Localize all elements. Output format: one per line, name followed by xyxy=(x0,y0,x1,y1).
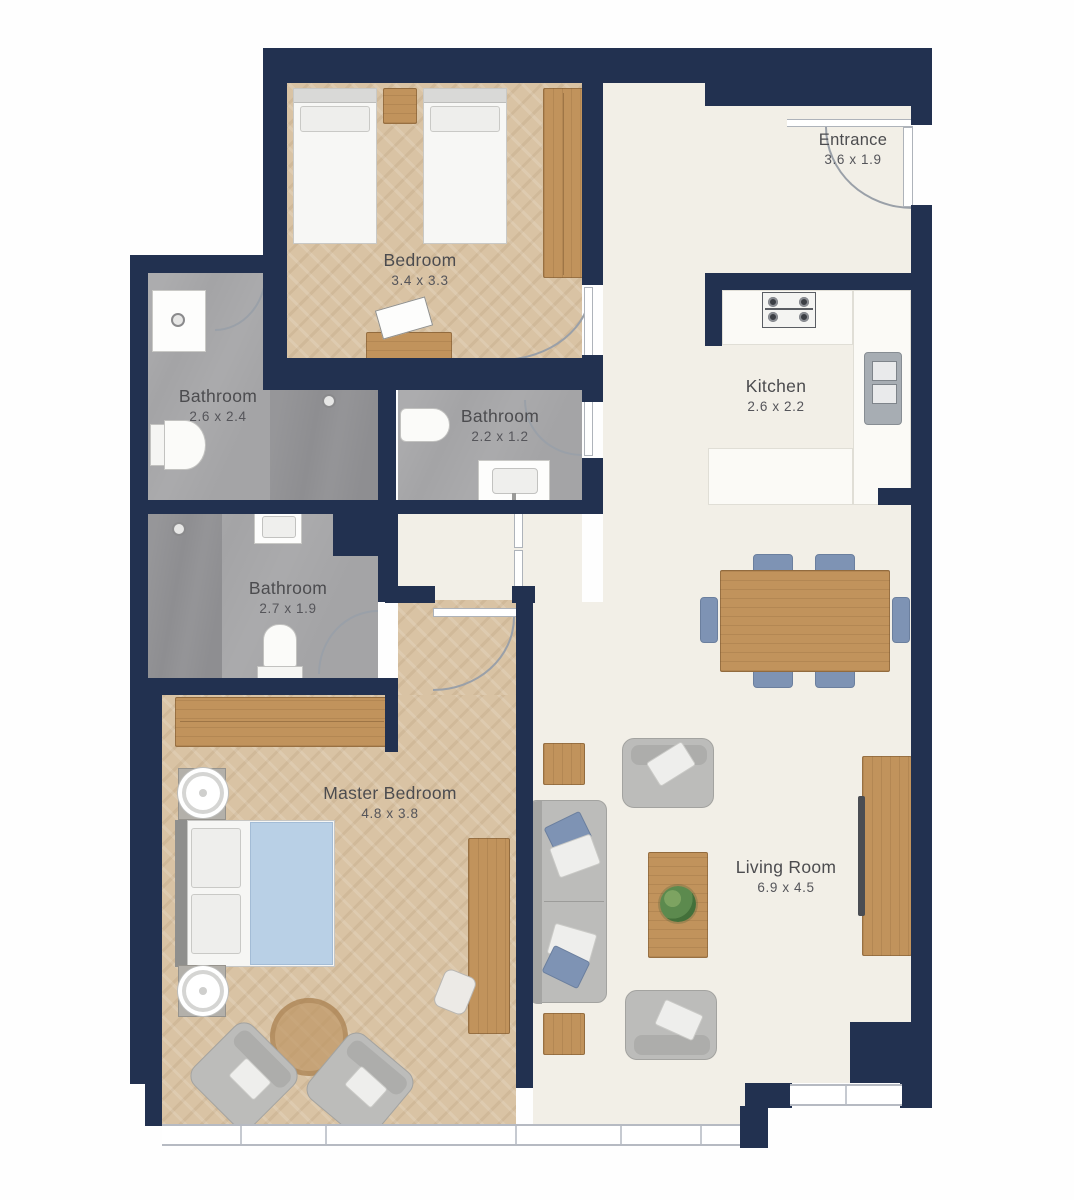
window xyxy=(790,1084,902,1106)
wall xyxy=(740,1106,768,1148)
window-mullion xyxy=(845,1086,847,1104)
room-name: Bathroom xyxy=(198,578,378,600)
basin xyxy=(262,516,296,538)
window-mullion xyxy=(700,1126,702,1144)
room-label-kitchen: Kitchen 2.6 x 2.2 xyxy=(686,376,866,416)
wall xyxy=(263,48,287,378)
bed-pillow xyxy=(191,828,241,888)
wall xyxy=(911,205,932,1022)
room-label-master-bedroom: Master Bedroom 4.8 x 3.8 xyxy=(270,783,510,823)
wall xyxy=(130,678,398,695)
toilet xyxy=(257,624,301,678)
cooktop xyxy=(762,292,816,328)
wall xyxy=(130,500,603,514)
burner-icon xyxy=(799,312,809,322)
headboard xyxy=(424,89,506,103)
fridge-door xyxy=(872,384,897,404)
tv-cabinet xyxy=(862,756,912,956)
room-name: Bathroom xyxy=(128,386,308,408)
wall xyxy=(263,358,603,390)
shower-tray xyxy=(152,290,206,352)
room-dimensions: 4.8 x 3.8 xyxy=(270,806,510,823)
wall xyxy=(130,255,148,692)
room-dimensions: 2.6 x 2.4 xyxy=(128,409,308,426)
wall xyxy=(385,586,435,603)
tv-icon xyxy=(858,796,865,916)
wall xyxy=(850,1022,932,1083)
window-mullion xyxy=(240,1126,242,1144)
floor-drain-icon xyxy=(322,394,336,408)
side-table xyxy=(543,743,585,785)
basin xyxy=(492,468,538,494)
bed-blanket xyxy=(250,822,333,965)
wall xyxy=(878,488,911,505)
room-label-bathroom-1: Bathroom 2.6 x 2.4 xyxy=(128,386,308,426)
door-leaf xyxy=(433,608,517,617)
room-label-bathroom-2: Bathroom 2.2 x 1.2 xyxy=(410,406,590,446)
wall xyxy=(516,600,533,1088)
living-area-floor xyxy=(533,1106,740,1124)
wardrobe xyxy=(543,88,585,278)
single-bed xyxy=(293,88,377,244)
double-door-leaf xyxy=(514,550,523,590)
entrance-threshold xyxy=(787,119,913,127)
wall xyxy=(900,1082,932,1108)
door-leaf xyxy=(584,287,593,359)
room-name: Living Room xyxy=(676,857,896,879)
wall xyxy=(130,692,162,1084)
window-mullion xyxy=(325,1126,327,1144)
room-name: Kitchen xyxy=(686,376,866,398)
room-dimensions: 3.4 x 3.3 xyxy=(320,273,520,290)
wall xyxy=(705,273,911,290)
toilet xyxy=(150,420,204,468)
wall xyxy=(705,273,722,346)
lamp-icon xyxy=(186,776,220,810)
kitchen-counter xyxy=(708,448,853,505)
wardrobe-divider xyxy=(180,721,384,722)
dining-chair xyxy=(892,597,910,643)
wall xyxy=(582,458,603,514)
window xyxy=(162,1124,740,1146)
wardrobe-divider xyxy=(563,93,564,275)
fridge-door xyxy=(872,361,897,381)
wall xyxy=(705,48,932,106)
room-label-living-room: Living Room 6.9 x 4.5 xyxy=(676,857,896,897)
headboard xyxy=(294,89,376,103)
sofa-seat-line xyxy=(544,901,604,902)
bed-pillow xyxy=(430,106,500,132)
room-label-entrance: Entrance 3.6 x 1.9 xyxy=(778,130,928,169)
room-label-bedroom: Bedroom 3.4 x 3.3 xyxy=(320,250,520,290)
room-label-bathroom-3: Bathroom 2.7 x 1.9 xyxy=(198,578,378,618)
fridge xyxy=(864,352,902,425)
dining-table xyxy=(720,570,890,672)
floor-plan: Bedroom 3.4 x 3.3 Bathroom 2.6 x 2.4 Bat… xyxy=(0,0,1074,1200)
burner-icon xyxy=(768,297,778,307)
lamp-icon xyxy=(186,974,220,1008)
toilet-bowl xyxy=(164,420,206,470)
bed-pillow xyxy=(191,894,241,954)
double-door-leaf xyxy=(514,508,523,548)
room-name: Bedroom xyxy=(320,250,520,272)
wall xyxy=(911,48,932,125)
room-dimensions: 2.7 x 1.9 xyxy=(198,601,378,618)
wall xyxy=(378,390,396,500)
desk xyxy=(468,838,510,1034)
room-dimensions: 2.6 x 2.2 xyxy=(686,399,866,416)
shower-drain-icon xyxy=(171,313,185,327)
bed-pillow xyxy=(300,106,370,132)
burner-icon xyxy=(799,297,809,307)
room-name: Master Bedroom xyxy=(270,783,510,805)
headboard xyxy=(175,820,187,967)
window-mullion xyxy=(620,1126,622,1144)
single-bed xyxy=(423,88,507,244)
burner-icon xyxy=(768,312,778,322)
wall xyxy=(385,678,398,752)
side-table xyxy=(543,1013,585,1055)
cooktop-grate xyxy=(765,308,813,310)
room-dimensions: 3.6 x 1.9 xyxy=(778,152,928,169)
vanity-sink xyxy=(478,460,550,502)
wall xyxy=(582,82,603,285)
wall xyxy=(745,1083,792,1108)
wall xyxy=(333,514,378,556)
wall xyxy=(582,390,603,402)
wall xyxy=(145,1084,162,1126)
dining-chair xyxy=(700,597,718,643)
room-name: Entrance xyxy=(778,130,928,151)
room-dimensions: 2.2 x 1.2 xyxy=(410,429,590,446)
room-dimensions: 6.9 x 4.5 xyxy=(676,880,896,897)
shower-drain-icon xyxy=(172,522,186,536)
wardrobe xyxy=(175,697,387,747)
double-bed xyxy=(175,820,335,967)
armchair-back xyxy=(634,1035,710,1055)
toilet-bowl xyxy=(263,624,297,668)
wall xyxy=(263,48,712,83)
window-mullion xyxy=(515,1126,517,1144)
room-name: Bathroom xyxy=(410,406,590,428)
wall xyxy=(130,255,270,273)
nightstand xyxy=(383,88,417,124)
